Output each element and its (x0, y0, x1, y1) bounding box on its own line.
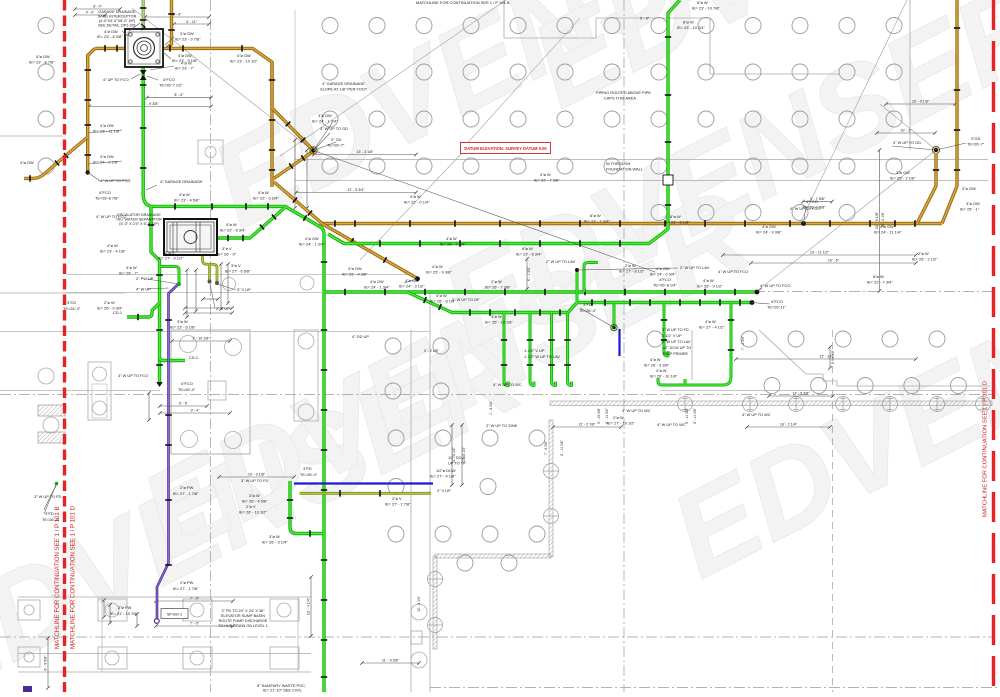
svg-text:MATCHLINE FOR CONTINUATION SEE: MATCHLINE FOR CONTINUATION SEE 1 / P 101… (416, 0, 510, 5)
svg-text:CAPS THIS AREA: CAPS THIS AREA (604, 96, 636, 101)
svg-text:3"ø W: 3"ø W (249, 493, 260, 498)
svg-text:IE= 26' - 10 1/2": IE= 26' - 10 1/2" (239, 510, 267, 515)
svg-text:7' - 6 3/8": 7' - 6 3/8" (544, 440, 548, 455)
svg-text:TE=26'-7 1/2": TE=26'-7 1/2" (159, 83, 183, 88)
svg-text:TE=26'-4": TE=26'-4" (42, 517, 60, 522)
svg-text:4"ø W: 4"ø W (179, 192, 190, 197)
svg-text:TE=26'-7": TE=26'-7" (327, 143, 345, 148)
svg-text:IE= 25' - 10 1/8": IE= 25' - 10 1/8" (485, 320, 513, 325)
svg-text:IE= 22' - 8 3/4": IE= 22' - 8 3/4" (516, 252, 542, 257)
svg-text:13' - 4 1/4": 13' - 4 1/4" (307, 597, 311, 615)
svg-text:2" W UP TO DF: 2" W UP TO DF (452, 297, 480, 302)
svg-text:IE= 26' - 7": IE= 26' - 7" (119, 271, 139, 276)
svg-text:13' - 5 3/8": 13' - 5 3/8" (792, 392, 810, 396)
svg-text:IE= 27' - 1 7/8": IE= 27' - 1 7/8" (173, 491, 199, 496)
svg-text:8' - 6": 8' - 6" (174, 93, 184, 97)
svg-text:4" UP TO FCO: 4" UP TO FCO (103, 77, 129, 82)
svg-text:4" GD UP: 4" GD UP (352, 334, 369, 339)
svg-text:3" W UP TO GD: 3" W UP TO GD (893, 140, 921, 145)
svg-text:4"ø W: 4"ø W (446, 236, 457, 241)
svg-text:11' - 8 1/2": 11' - 8 1/2" (452, 446, 456, 462)
svg-text:4"ø GW: 4"ø GW (237, 53, 251, 58)
svg-text:6' - 9 5/8": 6' - 9 5/8" (44, 655, 48, 671)
svg-text:IE= 24' - 1 3/4": IE= 24' - 1 3/4" (312, 119, 338, 124)
svg-text:IE= 26' - 9 3/8": IE= 26' - 9 3/8" (644, 364, 670, 368)
svg-text:IE= 22' - 0 1/4": IE= 22' - 0 1/4" (253, 196, 279, 201)
svg-text:4"FCO: 4"FCO (163, 77, 175, 82)
svg-text:ELEVATOR SUMP BASIN: ELEVATOR SUMP BASIN (221, 614, 265, 618)
svg-text:3"ø GW: 3"ø GW (966, 201, 980, 206)
svg-text:IE= 23' - 4 5/8": IE= 23' - 4 5/8" (174, 198, 200, 203)
svg-text:ROUTE PUMP DISCHARGE: ROUTE PUMP DISCHARGE (219, 619, 268, 623)
svg-text:4"FCO: 4"FCO (659, 277, 671, 282)
svg-text:4"ø W: 4"ø W (126, 265, 137, 270)
svg-text:TE=26'-4": TE=26'-4" (178, 387, 196, 392)
svg-text:IE= 26' - 10 1/8": IE= 26' - 10 1/8" (650, 375, 678, 379)
svg-text:4"ø W: 4"ø W (107, 243, 118, 248)
svg-text:3" W UP TO FD: 3" W UP TO FD (662, 328, 689, 332)
svg-text:IE= 25' - 9 3/8": IE= 25' - 9 3/8" (426, 270, 452, 275)
svg-text:4"ø W: 4"ø W (436, 293, 447, 298)
svg-text:MATCHLINE FOR CONTINUATION SEE: MATCHLINE FOR CONTINUATION SEE 1 / P 101… (983, 381, 989, 517)
svg-text:IE= 21'-10" SEE CIVIL: IE= 21'-10" SEE CIVIL (263, 688, 303, 693)
svg-text:IE= 22' - 8 3/4": IE= 22' - 8 3/4" (220, 228, 246, 233)
svg-text:IE= 25' - 4 3/8": IE= 25' - 4 3/8" (342, 272, 368, 277)
svg-text:IE= 27' - 4 1/4": IE= 27' - 4 1/4" (430, 474, 456, 479)
svg-text:IE= 26' - 7 3/4": IE= 26' - 7 3/4" (440, 242, 466, 247)
svg-text:6' - 1 5/8": 6' - 1 5/8" (527, 266, 531, 281)
svg-text:3" W UP TO GD: 3" W UP TO GD (320, 126, 348, 131)
svg-text:1-1/2" V UP: 1-1/2" V UP (524, 348, 545, 353)
svg-text:IE= 27' - 1 7/8": IE= 27' - 1 7/8" (173, 586, 199, 591)
svg-text:11' - 9 3/8": 11' - 9 3/8" (382, 659, 400, 663)
svg-text:4' - 11": 4' - 11" (186, 20, 198, 24)
svg-text:4" W UP TO WC: 4" W UP TO WC (622, 408, 651, 413)
svg-text:SAND INTERCEPTOR: SAND INTERCEPTOR (98, 15, 137, 19)
svg-text:4" GARAGE DRAINAGE: 4" GARAGE DRAINAGE (160, 179, 203, 184)
svg-text:2"ø V: 2"ø V (392, 496, 402, 501)
svg-text:GARAGE DRAINAGE: GARAGE DRAINAGE (98, 10, 136, 14)
svg-text:SP-BG-1: SP-BG-1 (167, 613, 182, 617)
svg-text:IE= 26' - 9": IE= 26' - 9" (217, 252, 237, 257)
svg-text:IE= 27' - 9 1/2": IE= 27' - 9 1/2" (158, 256, 184, 261)
svg-text:4" W UP TO WC: 4" W UP TO WC (742, 412, 771, 417)
svg-text:2"ø PW: 2"ø PW (118, 605, 132, 610)
svg-text:4"FCO: 4"FCO (181, 381, 193, 386)
svg-text:3"ø W: 3"ø W (269, 534, 280, 539)
svg-text:IE= 24' - 0 1/8": IE= 24' - 0 1/8" (93, 160, 119, 165)
svg-text:4"ø GW: 4"ø GW (762, 224, 776, 229)
svg-text:12' - 5 3/4": 12' - 5 3/4" (347, 188, 365, 192)
svg-text:1 1/2" V UP: 1 1/2" V UP (662, 334, 682, 338)
svg-text:IE= 23' - 10 7/8": IE= 23' - 10 7/8" (692, 6, 720, 11)
svg-text:IE= 25' - 2 1/8": IE= 25' - 2 1/8" (890, 176, 916, 181)
svg-text:IE= 25' - 1": IE= 25' - 1" (960, 207, 980, 212)
svg-text:3"FD: 3"FD (583, 302, 592, 307)
svg-text:4"ø GW: 4"ø GW (36, 54, 50, 59)
svg-text:SLOPE AT 1/8" PER FOOT: SLOPE AT 1/8" PER FOOT (320, 87, 368, 92)
svg-text:2"ø V: 2"ø V (165, 250, 175, 255)
svg-text:9' - 4": 9' - 4" (191, 409, 200, 413)
svg-text:4"ø W: 4"ø W (410, 194, 421, 199)
svg-text:TE=24'-3": TE=24'-3" (63, 306, 81, 311)
svg-text:4"ø W: 4"ø W (703, 278, 714, 283)
svg-text:3"FD: 3"FD (303, 466, 312, 471)
svg-text:FOUNDATION WALL: FOUNDATION WALL (606, 167, 644, 172)
svg-text:4"ø GW: 4"ø GW (100, 154, 114, 159)
svg-text:18' - 2 1/4": 18' - 2 1/4" (780, 423, 798, 427)
svg-text:IE= 22' - 0 1/4": IE= 22' - 0 1/4" (404, 200, 430, 205)
svg-text:TE=26'-11": TE=26'-11" (767, 305, 787, 310)
svg-text:2"ø PW: 2"ø PW (180, 485, 194, 490)
svg-text:3" V UP: 3" V UP (237, 287, 251, 292)
svg-text:PIPING ROUTED ABOVE PIPE: PIPING ROUTED ABOVE PIPE (596, 90, 651, 95)
svg-text:3"ø GW: 3"ø GW (318, 113, 332, 118)
svg-text:4"ø GW: 4"ø GW (20, 160, 34, 165)
svg-text:8"ø W: 8"ø W (873, 274, 884, 279)
svg-text:0' - 2 1/8": 0' - 2 1/8" (424, 349, 440, 353)
svg-text:4"ø GW: 4"ø GW (370, 279, 384, 284)
svg-text:4"ø W: 4"ø W (656, 369, 667, 373)
svg-text:3"ø W: 3"ø W (491, 314, 502, 319)
svg-text:3"GD: 3"GD (971, 136, 981, 141)
svg-text:CD-1: CD-1 (113, 310, 122, 315)
svg-text:IE= 22' - 7 3/8": IE= 22' - 7 3/8" (534, 178, 560, 183)
svg-text:IE= 26' - 7 3/8": IE= 26' - 7 3/8" (485, 285, 511, 290)
svg-text:(4'-0"X4'-0"X8'-0" DP): (4'-0"X4'-0"X8'-0" DP) (99, 19, 136, 23)
svg-text:3"ø GW: 3"ø GW (962, 186, 976, 191)
svg-text:3"CD: 3"CD (67, 300, 76, 305)
svg-text:2"ø V: 2"ø V (246, 504, 256, 509)
svg-text:IE= 23' - 10 1/4": IE= 23' - 10 1/4" (677, 25, 705, 30)
svg-text:IE= 23' - 9 7/8": IE= 23' - 9 7/8" (175, 37, 201, 42)
svg-text:3"ø V: 3"ø V (222, 246, 232, 251)
svg-text:16' - 0 1/8": 16' - 0 1/8" (912, 100, 930, 104)
svg-text:13' - 11 1/2": 13' - 11 1/2" (810, 251, 830, 255)
svg-text:4" W UP TO WC: 4" W UP TO WC (657, 422, 686, 427)
svg-text:IE= 27' - 10 1/2": IE= 27' - 10 1/2" (607, 421, 635, 426)
svg-text:8"ø W: 8"ø W (683, 20, 694, 25)
svg-text:IE= 24' - 1 3/4": IE= 24' - 1 3/4" (299, 242, 325, 247)
svg-text:4"ø W: 4"ø W (705, 319, 716, 324)
svg-text:TRAP PRIMER: TRAP PRIMER (662, 352, 688, 356)
svg-text:4"FCO: 4"FCO (806, 199, 818, 204)
svg-text:4" W UP TO WC: 4" W UP TO WC (493, 382, 522, 387)
svg-text:4"ø W: 4"ø W (258, 190, 269, 195)
svg-text:IE= 23' - 8 7/8": IE= 23' - 8 7/8" (29, 60, 55, 65)
svg-text:8"ø W: 8"ø W (590, 213, 601, 218)
svg-text:CD-1: CD-1 (189, 355, 198, 360)
svg-text:2" W UP TO LAV: 2" W UP TO LAV (546, 259, 576, 264)
svg-text:IE= 23' - 11 1/8": IE= 23' - 11 1/8" (93, 129, 121, 134)
svg-text:8' - 11 3/8": 8' - 11 3/8" (560, 439, 564, 455)
svg-text:IE= 23' - 10 1/2": IE= 23' - 10 1/2" (230, 59, 258, 64)
svg-text:4" W UP TO FCO: 4" W UP TO FCO (96, 214, 126, 219)
svg-text:2" W UP TO LAV: 2" W UP TO LAV (680, 265, 710, 270)
svg-text:4"ø W: 4"ø W (650, 358, 661, 362)
svg-text:(5'-3" X 2'3" X 6'-6" DP): (5'-3" X 2'3" X 6'-6" DP) (119, 222, 159, 226)
svg-text:3"ø GW: 3"ø GW (896, 170, 910, 175)
svg-text:7' - 0": 7' - 0" (190, 622, 200, 626)
svg-text:3"ø W: 3"ø W (177, 319, 188, 324)
svg-text:4" GARAGE DRAINAGE: 4" GARAGE DRAINAGE (322, 81, 365, 86)
svg-text:4"FCO: 4"FCO (99, 190, 111, 195)
svg-text:1/2"ø DCW: 1/2"ø DCW (436, 468, 456, 473)
svg-text:2"ø W: 2"ø W (104, 300, 115, 305)
svg-text:IE= 23' - 8 3/8": IE= 23' - 8 3/8" (97, 34, 123, 39)
svg-text:2" W UP TO LAV: 2" W UP TO LAV (662, 340, 691, 344)
svg-text:8' - 11 3/8": 8' - 11 3/8" (693, 407, 697, 423)
svg-text:IE= 23' - 6 1/8": IE= 23' - 6 1/8" (170, 325, 196, 330)
svg-text:TE=26'-8 1/4": TE=26'-8 1/4" (653, 283, 677, 288)
svg-text:8"ø W: 8"ø W (522, 246, 533, 251)
svg-text:9' - 4 1/8": 9' - 4 1/8" (831, 349, 835, 364)
svg-text:13' - 3 1/8": 13' - 3 1/8" (356, 150, 374, 154)
svg-text:W THROUGH: W THROUGH (606, 161, 631, 166)
svg-text:IE= 26' - 4 5/8": IE= 26' - 4 5/8" (242, 499, 268, 504)
svg-text:10' - 3": 10' - 3" (900, 129, 912, 133)
svg-text:12' - 8 1/4": 12' - 8 1/4" (462, 446, 466, 463)
svg-text:3"ø V: 3"ø V (231, 263, 241, 268)
svg-text:IE= 24' - 3 1/2": IE= 24' - 3 1/2" (399, 284, 425, 289)
svg-text:2" V UP: 2" V UP (216, 306, 230, 311)
svg-text:IE= 24' - 11 1/4": IE= 24' - 11 1/4" (874, 230, 902, 235)
svg-text:4"ø GW: 4"ø GW (100, 123, 114, 128)
svg-text:3"ø GW: 3"ø GW (180, 31, 194, 36)
svg-text:3" GD: 3" GD (331, 137, 342, 142)
svg-text:12' - 2 7/8": 12' - 2 7/8" (578, 423, 596, 427)
svg-text:IE= 23' - 4 1/8": IE= 23' - 4 1/8" (100, 249, 126, 254)
svg-text:4"FCO: 4"FCO (771, 299, 783, 304)
svg-text:7' - 2 3/4": 7' - 2 3/4" (741, 335, 745, 350)
svg-text:8' - 11 3/4": 8' - 11 3/4" (605, 407, 609, 423)
svg-text:4"ø GW: 4"ø GW (305, 236, 319, 241)
svg-text:DATUM ELEVATION: SURVEY DATUM: DATUM ELEVATION: SURVEY DATUM 0.00 (464, 146, 547, 151)
svg-text:9' - 11 3/4": 9' - 11 3/4" (685, 407, 689, 423)
svg-text:IE= 24' - 0 3/4": IE= 24' - 0 3/4" (650, 272, 676, 277)
svg-text:16' - 0 1/8": 16' - 0 1/8" (881, 211, 885, 228)
svg-text:TO HUB DRAIN ON LEVEL 1: TO HUB DRAIN ON LEVEL 1 (218, 624, 268, 628)
svg-text:IE= 26' - 3 1/4": IE= 26' - 3 1/4" (262, 540, 288, 545)
svg-text:2"ø W: 2"ø W (491, 279, 502, 284)
svg-text:IE= 27' - 4 1/2": IE= 27' - 4 1/2" (699, 325, 725, 330)
svg-text:1' - 6 3/8": 1' - 6 3/8" (489, 400, 493, 415)
svg-text:IE= 23' - 7": IE= 23' - 7" (175, 66, 195, 71)
svg-text:2" PW UP: 2" PW UP (136, 276, 154, 281)
svg-text:3"FD: 3"FD (45, 511, 54, 516)
svg-text:16' - 0 1/8": 16' - 0 1/8" (875, 211, 879, 229)
svg-text:4" W UP TO FCO: 4" W UP TO FCO (760, 283, 790, 288)
svg-text:IE= 27' - 2 7/8": IE= 27' - 2 7/8" (385, 502, 411, 507)
svg-text:2"ø W: 2"ø W (625, 263, 636, 268)
svg-text:2" PD TO 24" X 24" X 36": 2" PD TO 24" X 24" X 36" (221, 609, 265, 613)
svg-text:8"ø W: 8"ø W (670, 214, 681, 219)
svg-text:IE= 22' - 7 3/4": IE= 22' - 7 3/4" (867, 280, 893, 285)
svg-text:8"ø W: 8"ø W (697, 0, 708, 5)
svg-text:TE=26'-4": TE=26'-4" (300, 472, 318, 477)
svg-text:7' - 0": 7' - 0" (190, 597, 200, 601)
svg-text:IE= 22' - 7 3/4": IE= 22' - 7 3/4" (584, 219, 610, 224)
svg-text:IE= 21' - 10 7/8": IE= 21' - 10 7/8" (110, 611, 138, 616)
svg-text:IE= 26' - 9 1/2": IE= 26' - 9 1/2" (697, 284, 723, 289)
svg-text:2" W UP TO SINK: 2" W UP TO SINK (486, 423, 518, 428)
svg-text:IE= 24' - 9 3/8": IE= 24' - 9 3/8" (756, 230, 782, 235)
svg-text:IE= 23' - 5 1/8": IE= 23' - 5 1/8" (664, 220, 690, 225)
svg-text:2"ø W: 2"ø W (918, 251, 929, 256)
svg-text:1-1/2" W UP TO LAV: 1-1/2" W UP TO LAV (524, 354, 560, 359)
svg-text:MATCHLINE FOR CONTINUATION SEE: MATCHLINE FOR CONTINUATION SEE 1 / P 101… (54, 506, 61, 649)
svg-text:1/2" DCW UP TO: 1/2" DCW UP TO (662, 346, 691, 350)
svg-text:6' - 6": 6' - 6" (179, 402, 188, 406)
svg-text:4' - 0": 4' - 0" (86, 11, 95, 15)
svg-text:4"ø W: 4"ø W (432, 264, 443, 269)
svg-text:4"ø W: 4"ø W (226, 222, 237, 227)
svg-text:12' - 8 1/4": 12' - 8 1/4" (417, 595, 421, 612)
svg-text:4" W UP TO FCO: 4" W UP TO FCO (718, 269, 748, 274)
svg-text:5' - 6": 5' - 6" (640, 17, 650, 21)
svg-text:SEE DETAIL 2/P1-201: SEE DETAIL 2/P1-201 (98, 24, 136, 28)
svg-text:TE=26'-8 7/8": TE=26'-8 7/8" (95, 196, 119, 201)
svg-text:4"ø GW: 4"ø GW (348, 266, 362, 271)
svg-text:8' - 0": 8' - 0" (93, 5, 102, 9)
svg-text:3" W UP TO FCO: 3" W UP TO FCO (118, 373, 148, 378)
svg-text:2"ø PW: 2"ø PW (180, 580, 194, 585)
svg-text:IE= 24' - 1 3/4": IE= 24' - 1 3/4" (364, 285, 390, 290)
svg-text:2"ø W: 2"ø W (613, 415, 624, 420)
svg-text:2" V UP: 2" V UP (437, 488, 451, 493)
svg-text:10' - 0 1/8": 10' - 0 1/8" (248, 473, 266, 477)
svg-text:IE= 26' - 2 1/2": IE= 26' - 2 1/2" (912, 257, 938, 262)
svg-text:3" W UP TO FD: 3" W UP TO FD (241, 478, 269, 483)
svg-text:9' - 10 3/8": 9' - 10 3/8" (597, 407, 601, 424)
svg-text:3' - 10 1/8": 3' - 10 1/8" (192, 337, 210, 341)
svg-text:3" W UP TO FD: 3" W UP TO FD (34, 494, 62, 499)
svg-text:TE=26'-7": TE=26'-7" (967, 142, 985, 147)
svg-text:IE= 27' - 6 5/8": IE= 27' - 6 5/8" (225, 269, 251, 274)
svg-text:10' - 5": 10' - 5" (828, 259, 840, 263)
svg-text:4"ø W: 4"ø W (540, 172, 551, 177)
svg-text:MATCHLINE FOR CONTINUATION SEE: MATCHLINE FOR CONTINUATION SEE 1 / P 101… (70, 506, 77, 649)
